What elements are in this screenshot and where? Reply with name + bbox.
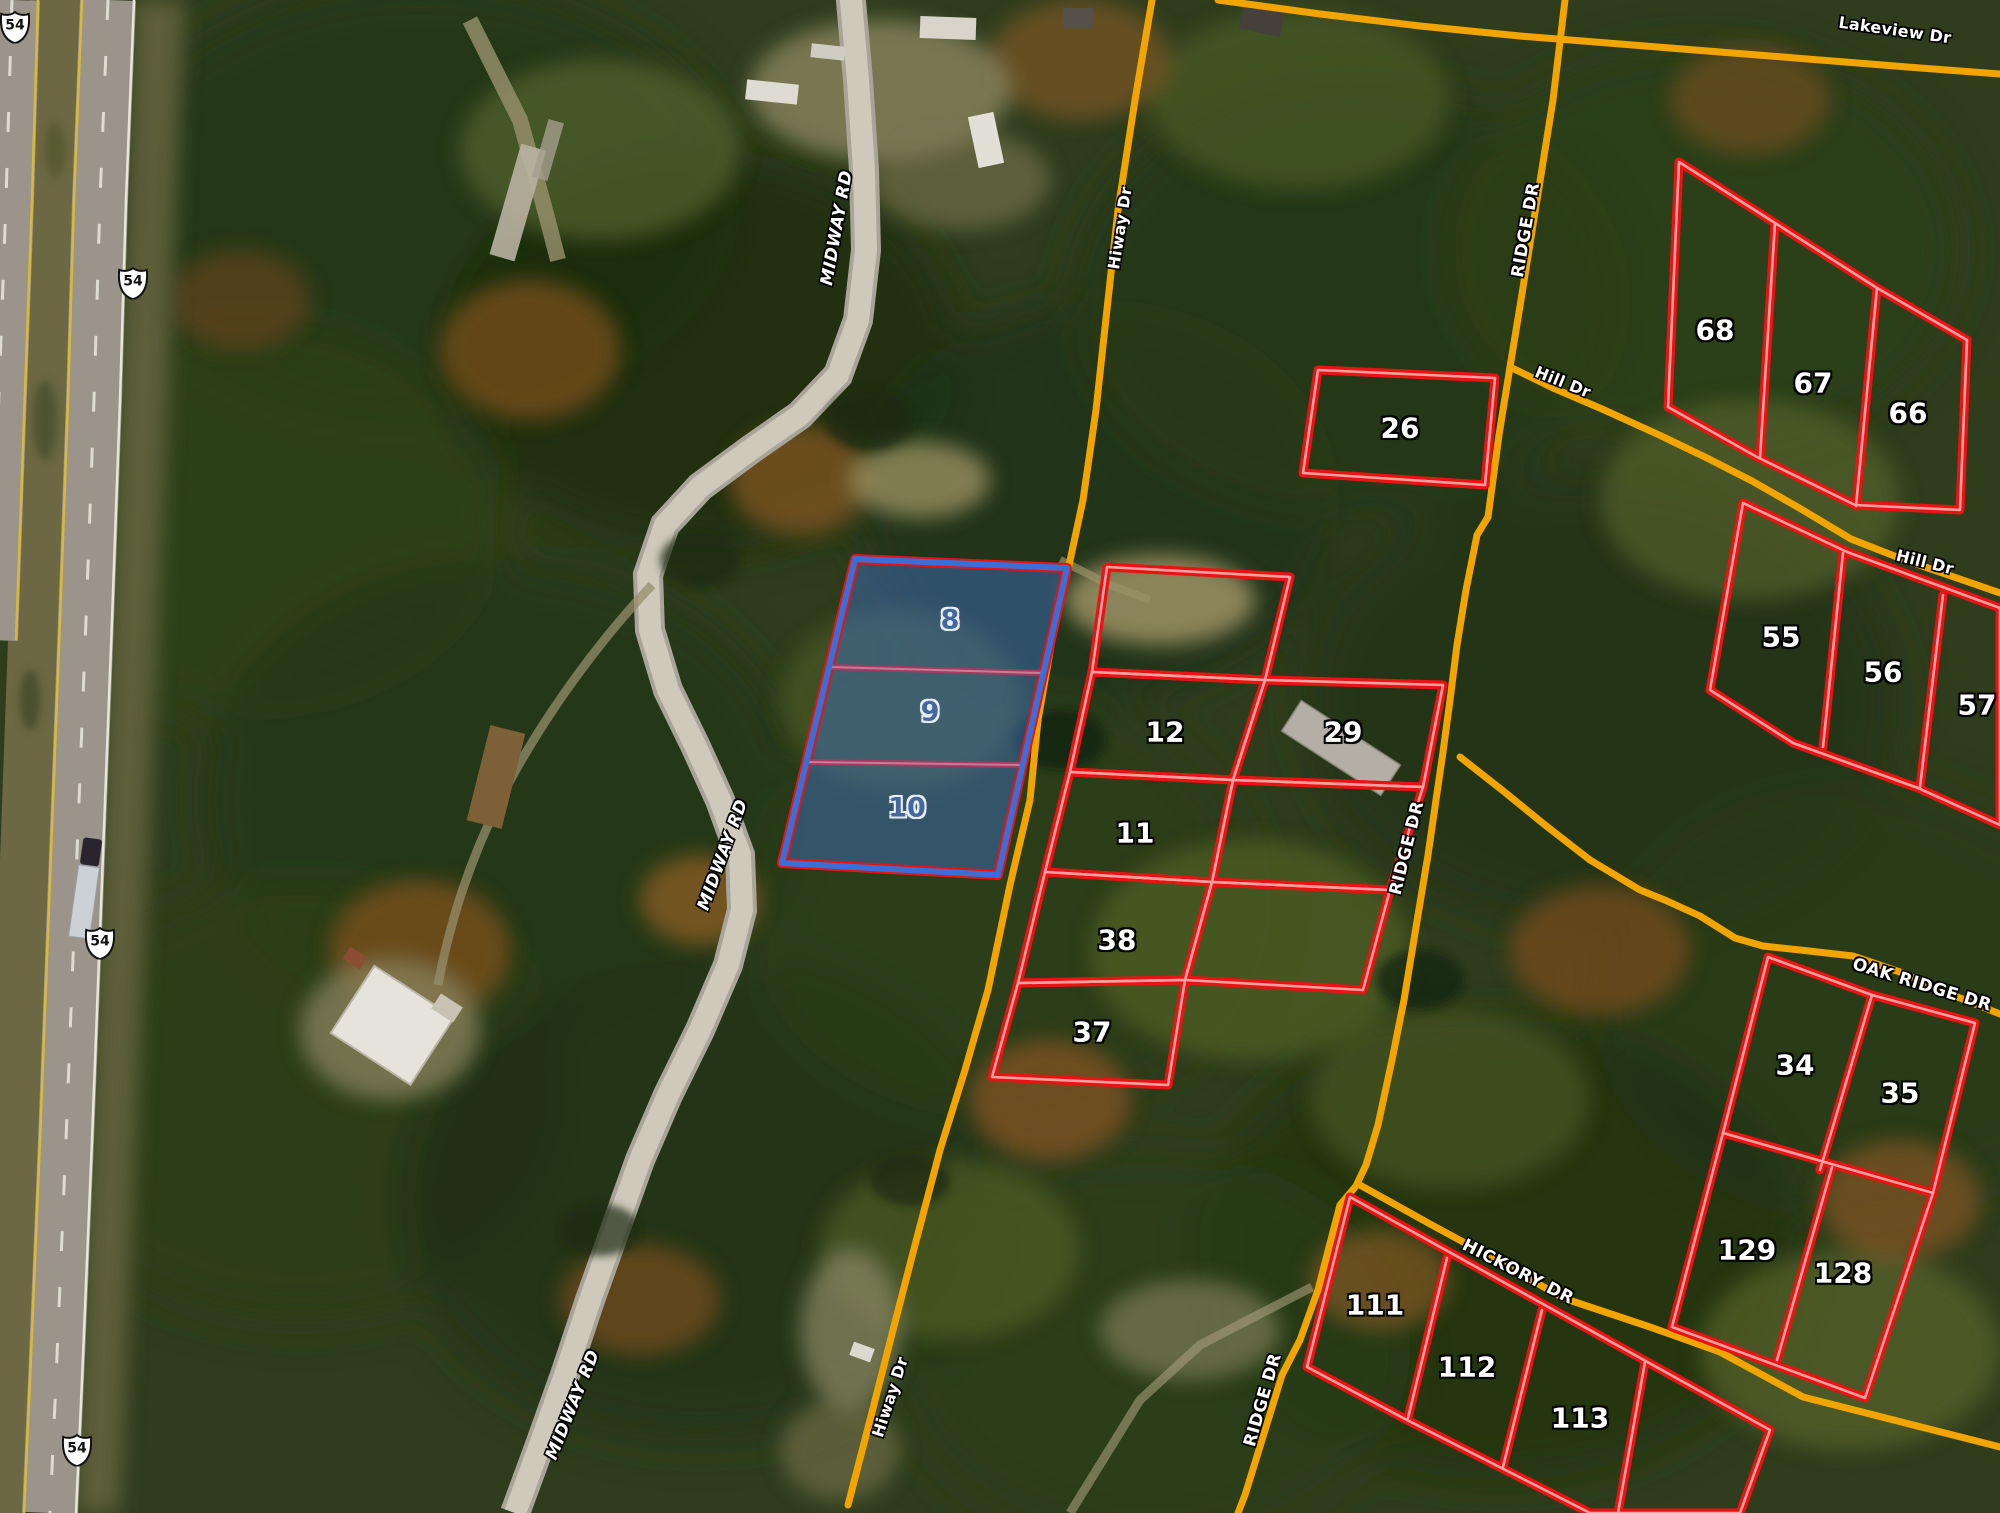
satellite-map-canvas [0,0,2000,1513]
trailer-3 [920,16,977,40]
small-structure [1063,8,1093,28]
highway-southbound-lanes [0,0,12,640]
parcel-map-viewport: MIDWAY RD MIDWAY RD MIDWAY RD Hiway Dr H… [0,0,2000,1513]
